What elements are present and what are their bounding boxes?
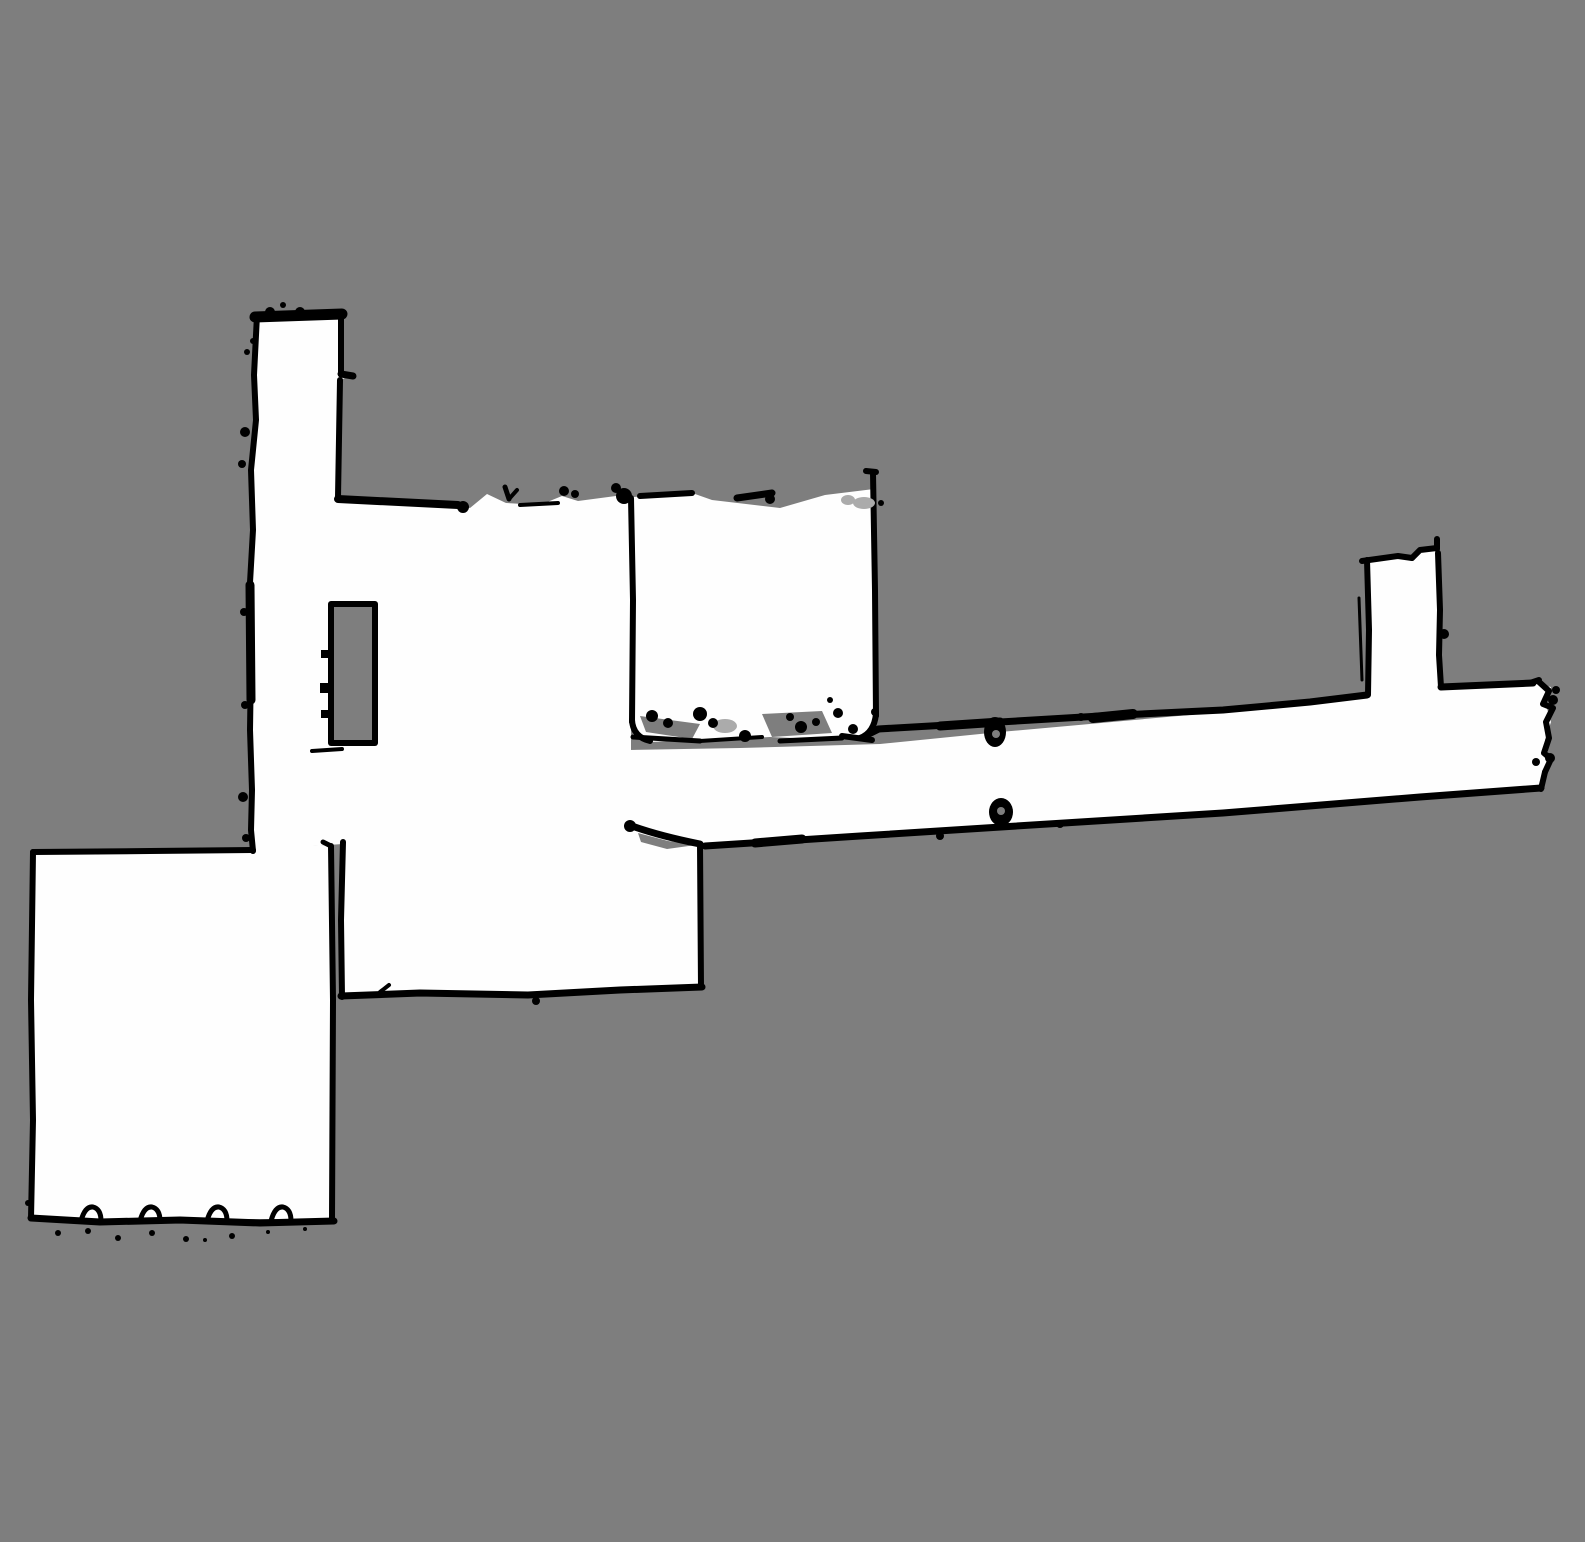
free-space-upper-room (633, 489, 876, 742)
door-post-2 (989, 798, 1013, 826)
free-space-bottom-left-room (32, 845, 333, 1219)
map-canvas (0, 0, 1585, 1542)
door-post-1 (984, 717, 1006, 747)
occupancy-grid-map (0, 0, 1585, 1542)
